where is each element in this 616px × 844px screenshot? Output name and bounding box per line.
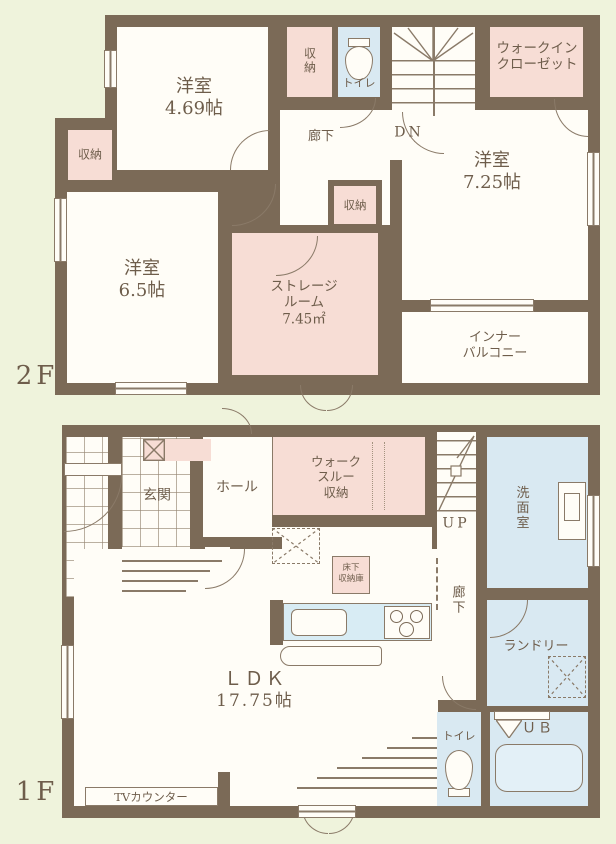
bath-label: ＵＢ: [522, 720, 554, 737]
label-line: インナー: [463, 330, 528, 346]
burner-icon: [410, 610, 423, 623]
bath-door-leaf: [494, 711, 550, 720]
counter-front: [280, 646, 382, 666]
step-line: [122, 590, 186, 592]
toilet-label: トイレ: [443, 729, 476, 742]
sink-basin: [564, 493, 580, 521]
closet-top-label: 収納: [302, 47, 319, 75]
stairs-divider: [433, 27, 435, 116]
dotted-divider: [372, 442, 373, 510]
label-line: クローゼット: [497, 57, 578, 73]
stairs-diagonal-icon: [437, 432, 476, 512]
closet-left-label: 収納: [78, 148, 102, 163]
bathtub-icon: [495, 744, 583, 792]
label-line: 収納: [311, 485, 361, 500]
floor-label-2f: 2F: [16, 361, 59, 393]
room-name: 洋室: [119, 258, 166, 280]
stove-icon: [384, 606, 430, 639]
room-name: 洋室: [165, 76, 223, 98]
label-line: ストレージ: [270, 278, 337, 294]
toilet-bowl: [345, 46, 373, 80]
sliding-window: [430, 299, 534, 312]
walk-through-storage-label: ウォーク スルー 収納: [311, 454, 361, 500]
room-label: 洋室 6.5帖: [119, 258, 166, 302]
room-size: 7.25帖: [463, 172, 521, 194]
storage-room-label: ストレージ ルーム 7.45㎡: [270, 278, 337, 327]
stairs-dn-label: DN: [394, 124, 423, 141]
step-line: [412, 737, 437, 739]
step-line: [122, 580, 198, 582]
room-label: 洋室 4.69帖: [165, 76, 223, 120]
door-arc: [300, 385, 326, 411]
washroom-label: 洗面室: [512, 486, 531, 531]
room-name: ＬＤＫ: [216, 668, 294, 691]
step-line: [362, 757, 437, 759]
toilet-icon: [445, 750, 473, 798]
hallway-label: 廊下: [308, 129, 334, 145]
step-line: [317, 777, 437, 779]
closet-mid-label: 収納: [344, 198, 367, 212]
underfloor-storage-label: 床下 収納庫: [338, 563, 364, 585]
label-line: スルー: [311, 469, 361, 484]
stairs-up-label: UP: [442, 515, 469, 532]
window: [54, 198, 67, 262]
step-line: [122, 570, 210, 572]
window: [115, 382, 187, 395]
step-line: [337, 767, 437, 769]
window: [61, 645, 74, 719]
folding-door-icon: [496, 720, 522, 738]
inner-balcony-label: インナー バルコニー: [463, 330, 528, 362]
wall: [218, 772, 230, 806]
step-line: [387, 747, 437, 749]
door-arc: [327, 385, 353, 411]
window: [104, 50, 117, 88]
step-line: [122, 560, 222, 562]
sink-icon: [558, 482, 586, 540]
label-line: 収納庫: [338, 574, 364, 585]
ldk-label: ＬＤＫ 17.75帖: [216, 668, 294, 712]
floor-label-1f: 1F: [16, 777, 59, 809]
burner-icon: [399, 622, 414, 637]
label-line: ルーム: [270, 295, 337, 311]
window: [587, 495, 600, 567]
entrance-door-leaf: [64, 463, 122, 476]
kitchen-sink-icon: [291, 609, 347, 636]
room-size: 17.75帖: [216, 691, 294, 712]
room-name: 洋室: [463, 150, 521, 172]
sliding-door-dashed: [436, 558, 438, 610]
entrance-label: 玄関: [143, 487, 171, 504]
dashed-x-icon: [548, 656, 586, 698]
window: [587, 152, 600, 226]
room-size: 6.5帖: [119, 280, 166, 302]
room-label: 洋室 7.25帖: [463, 150, 521, 194]
dotted-divider: [384, 442, 385, 510]
window: [298, 805, 356, 818]
walk-in-closet-label: ウォークイン クローゼット: [497, 41, 578, 74]
label-line: 床下: [338, 563, 364, 574]
label-line: ウォークイン: [497, 41, 578, 57]
room-size: 4.69帖: [165, 98, 223, 120]
label-line: 7.45㎡: [270, 311, 337, 327]
corridor-label: 廊下: [448, 585, 467, 615]
floor-plan-canvas: 洋室 4.69帖 収納 トイレ DN ウォークイン クローゼット 廊下 収納 洋…: [0, 0, 616, 844]
tv-counter-label: TVカウンター: [114, 790, 187, 804]
hall-label: ホール: [216, 479, 258, 496]
label-line: バルコニー: [463, 346, 528, 362]
toilet-bowl: [445, 750, 473, 790]
label-line: ウォーク: [311, 454, 361, 469]
dashed-x-icon: [272, 528, 320, 564]
door-arc: [222, 408, 252, 434]
shoe-box-x-icon: [143, 439, 165, 461]
wall: [270, 600, 283, 645]
laundry-label: ランドリー: [503, 639, 568, 655]
step-line: [297, 787, 437, 789]
burner-icon: [390, 610, 403, 623]
wall: [190, 537, 205, 549]
toilet-label: トイレ: [343, 76, 376, 89]
